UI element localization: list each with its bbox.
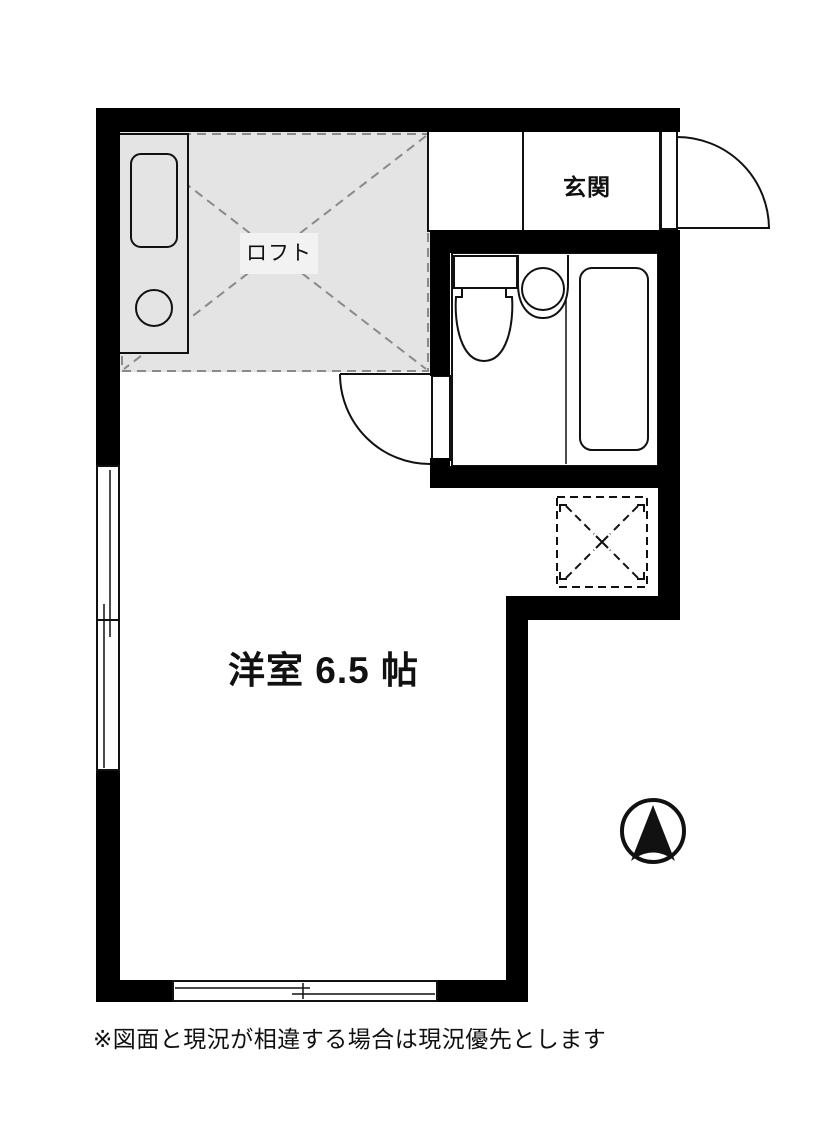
entry-door-swing-arc (677, 137, 769, 228)
wall-top (96, 108, 680, 132)
entrance-label: 玄関 (563, 176, 611, 199)
left-window-icon (97, 466, 119, 770)
bathtub-icon (580, 268, 648, 450)
wall-nook-bottom (506, 596, 680, 620)
wall-entrance-bottom (430, 230, 680, 253)
entry-door-jamb (661, 131, 677, 229)
wall-right-main (658, 230, 680, 620)
floor-plan-drawing (0, 0, 816, 1145)
bottom-window-icon (173, 981, 437, 1001)
bath-door-jamb (432, 376, 450, 460)
main-room-label: 洋室 6.5 帖 (228, 652, 419, 689)
windows (97, 466, 437, 1001)
wall-bottom-left (96, 980, 174, 1002)
bath-door-swing-arc (340, 374, 430, 464)
floor-plan: ロフト 玄関 洋室 6.5 帖 ※図面と現況が相違する場合は現況優先とします (0, 0, 816, 1145)
wall-bath-bottom (430, 466, 680, 488)
entrance-floor (428, 130, 660, 231)
wall-bath-left-upper (430, 253, 450, 376)
wall-left-lower (96, 770, 120, 1002)
loft-label: ロフト (240, 233, 318, 274)
wall-right-top-stub (658, 108, 680, 130)
wash-basin-bowl-icon (522, 268, 564, 310)
disclaimer-text: ※図面と現況が相違する場合は現況優先とします (93, 1028, 606, 1051)
wall-step-vertical (506, 596, 528, 1002)
toilet-tank-icon (454, 256, 517, 288)
loft-hatch-icon (557, 497, 647, 587)
wall-left-upper (96, 108, 120, 466)
north-arrow-icon (622, 800, 684, 862)
kitchen-unit (118, 134, 188, 353)
